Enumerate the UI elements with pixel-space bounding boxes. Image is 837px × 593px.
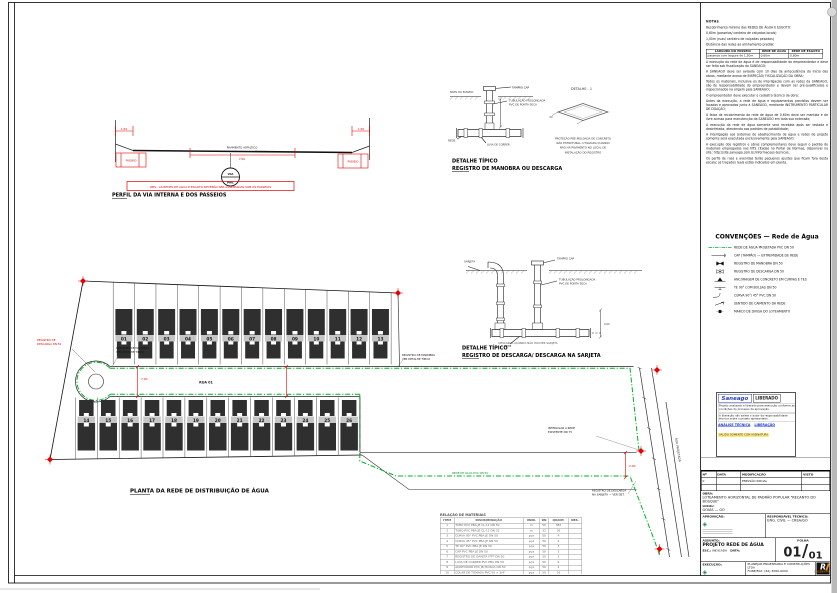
legend-panel: CONVENÇÕES — Rede de Água REDE DE ÁGUA P… <box>706 233 828 333</box>
valve-icon <box>708 261 733 267</box>
label: RUA 01 <box>199 381 213 385</box>
lot-number: 25 <box>324 418 330 424</box>
lot-house: 14 <box>78 400 96 451</box>
label: PROTEÇÃO PRÉ-MOLDADA DE CONCRETO <box>555 136 611 141</box>
sheet-number-cell: FOLHA 01/01 <box>776 538 830 561</box>
legend-label: MARCO DE DIVISA DO LOTEAMENTO <box>734 310 790 314</box>
note-paragraph: A SANEAGO deve ser avisada com 10 dias d… <box>706 70 828 78</box>
dimension-line <box>624 451 627 479</box>
label: TUBULAÇÃO PROLONGADA <box>558 277 595 282</box>
note-paragraph: Recobrimento mínimo das REDES DE ÁGUA E … <box>706 26 828 30</box>
note-paragraph: Antes da execução, a rede de água e equi… <box>706 100 828 112</box>
notes-paragraphs-2: A execução da rede de água é de responsa… <box>706 60 828 164</box>
title-block: NºDATAMODIFICAÇÃOVISTO0EMISSÃO INICIAL O… <box>701 470 830 576</box>
label: TUBULAÇÃO PROLONGADA <box>508 98 545 103</box>
note-paragraph: A execução dos registros e obras complem… <box>706 143 828 155</box>
legend-item: CURVA 90°/ 45° PVC DN 50 <box>706 292 828 300</box>
legend-item: TE 90° COM BOLSAS DN 50 <box>706 284 828 292</box>
logo-stripe <box>825 564 830 571</box>
lot-house: 08 <box>265 309 282 359</box>
dimension-line <box>285 365 288 398</box>
responsible-cell: RESPONSÁVEL TÉCNICO: ENG. CIVIL — CREA/G… <box>766 514 830 537</box>
lot-number: 15 <box>105 418 111 424</box>
lot-house: 13 <box>372 309 389 359</box>
note-paragraph: O empreendedor deve executar o cadastro … <box>706 94 828 98</box>
label: VER DETALHE TÍPICO <box>402 356 430 361</box>
legend-title: CONVENÇÕES — Rede de Água <box>706 233 828 240</box>
lot-house: 24 <box>297 400 315 451</box>
label: 0,60 <box>604 322 610 326</box>
lot-number: 03 <box>164 336 170 342</box>
lot-house: 19 <box>187 400 205 451</box>
note-paragraph: Os perfis de ruas e avenidas terão peque… <box>706 157 828 165</box>
label: PVC DE PONTA SECA <box>509 103 537 107</box>
ground-hatch <box>466 271 524 274</box>
label: PAVIMENTO ASFÁLTICO <box>227 145 258 150</box>
lot-house: 17 <box>143 400 161 451</box>
lot-house: 03 <box>158 309 175 359</box>
project-location: GOIÁS — GO <box>703 508 829 512</box>
survey-marker-icon <box>78 276 88 286</box>
lot-house: 25 <box>319 400 337 451</box>
company-logo: R ENGENHARIA <box>817 563 830 575</box>
label: PAV. <box>227 180 234 184</box>
note-paragraph: A execução da rede de água somente será … <box>706 123 828 131</box>
lot-number: 10 <box>313 336 319 342</box>
legend-item: REDE DE ÁGUA PROJETADA PVC DN 50 <box>706 244 828 252</box>
label: PERFIL DA VIA INTERNA E DOS PASSEIOS <box>112 193 227 199</box>
label: PASSEIO <box>348 160 359 164</box>
legend-label: TE 90° COM BOLSAS DN 50 <box>734 286 776 290</box>
lot-number: 20 <box>215 418 221 424</box>
label: NÍVEL DO PASSEIO <box>450 89 473 94</box>
label: REDE DE ÁGUA PVC DN 50 <box>452 470 488 475</box>
approval-cell: APROVAÇÃO: ◈ <box>701 514 766 537</box>
lot-house: 16 <box>121 400 138 451</box>
survey-marker-icon <box>393 288 403 298</box>
lot-house: 11 <box>329 309 346 359</box>
legend-label: SENTIDO DE CAIMENTO DA REDE <box>734 302 785 306</box>
water-line <box>77 362 110 400</box>
note-paragraph: A execução da rede de água é de responsa… <box>706 60 828 68</box>
legend-label: REGISTRO DE DESCARGA DN 50 <box>734 270 784 274</box>
company-logo-icon: ◈ <box>703 521 708 527</box>
survey-marker-icon <box>652 365 662 375</box>
lot-number: 22 <box>259 418 265 424</box>
note-paragraph: A faixa de recobrimento da rede de água … <box>706 114 828 122</box>
lot-house: 23 <box>275 400 293 451</box>
legend-item: SENTIDO DE CAIMENTO DA REDE <box>706 300 828 308</box>
label: REGISTRO DE <box>37 338 56 342</box>
legend-label: REGISTRO DE MANOBRA DN 50 <box>734 262 783 266</box>
legend-item: MARCO DE DIVISA DO LOTEAMENTO <box>706 308 828 316</box>
label: REDE <box>448 139 456 143</box>
lot-house: 26 <box>340 400 358 451</box>
label: 1,50 <box>358 127 364 131</box>
drawing-title: PROJETO REDE DE ÁGUA <box>703 543 774 548</box>
label: 2,00 <box>629 464 636 468</box>
table-row: passeios com largura de 1,50m0,60m0,80m <box>706 54 823 59</box>
label: VIA <box>228 172 234 176</box>
materials-title: RELAÇÃO DE MATERIAIS <box>440 513 582 517</box>
lot-house: 05 <box>201 309 218 359</box>
lots-top-row: 01020304050607080910111213 <box>113 282 391 364</box>
label: REGISTRO DE MANOBRA <box>402 353 435 357</box>
lots-bottom-row: 14151617181920212223242526 <box>75 398 360 460</box>
cap-icon <box>708 253 733 259</box>
lot-number: 19 <box>193 418 199 424</box>
label: PVC DE PONTA SECA <box>559 282 587 286</box>
legend-item: CAP (TAMPÃO) — EXTREMIDADE DE REDE <box>706 252 828 260</box>
discharge-icon <box>708 269 733 275</box>
lot-house: 07 <box>244 309 261 359</box>
lot-number: 02 <box>142 336 148 342</box>
ground-hatch <box>549 271 637 274</box>
lot-number: 16 <box>127 418 133 424</box>
water-line-icon <box>708 245 733 251</box>
public-road <box>640 368 690 557</box>
note-paragraph: 0,60m (passeios/ canteiro de calçadas lo… <box>706 32 828 36</box>
label: LUVA DE CORRER <box>487 143 510 147</box>
dimension-line <box>136 365 139 398</box>
stamp-text: A liberação não exime o autor da respons… <box>718 413 796 422</box>
notes-table: LARGURA DO PASSEIOREDE DE ÁGUAREDE DE ES… <box>706 49 823 59</box>
project-field: OBRA: LOTEAMENTO HORIZONTAL DE PADRÃO PO… <box>701 491 830 514</box>
road-ticks <box>638 367 671 550</box>
signature-lines <box>703 529 764 533</box>
ground-hatch <box>450 97 478 100</box>
lot-number: 23 <box>280 418 286 424</box>
label: PASSEIO <box>126 159 137 163</box>
notes-title: NOTAS <box>706 20 828 24</box>
lot-house: 20 <box>209 400 227 451</box>
lot-house: 04 <box>180 309 197 359</box>
lot-number: 09 <box>292 336 298 342</box>
survey-marker-icon <box>45 455 55 465</box>
tee-icon <box>708 285 733 291</box>
lot-number: 26 <box>346 418 352 424</box>
materials-table: ITEMDISCRIMINAÇÃOUNID.DNQUANT.OBS. 1TUBO… <box>440 518 582 575</box>
lot-house: 09 <box>286 309 303 359</box>
lot-house: 06 <box>222 309 239 359</box>
label: 1,50 <box>121 127 127 131</box>
label: REGISTRO DE DESCARGA <box>592 489 626 493</box>
lot-number: 14 <box>83 418 89 424</box>
stamp-link: ANÁLISE TÉCNICA <box>718 423 750 427</box>
responsible-name: ENG. CIVIL — CREA/GO <box>767 519 828 523</box>
stamp-validity-note: VÁLIDO SOMENTE COM ASSINATURA <box>718 433 769 437</box>
revision-row <box>701 484 830 491</box>
flow-icon <box>708 301 733 307</box>
label: SARJETA <box>464 260 475 264</box>
materials-row: 10COLAR DE TOMADA PVC 50 × 3/4"pça5026 <box>440 570 582 574</box>
anchor-icon <box>708 277 733 283</box>
lot-house: 22 <box>253 400 270 451</box>
subject-cell: ASSUNTO: PROJETO REDE DE ÁGUA ESC.: INDI… <box>701 538 776 561</box>
label: INSTALAÇÃO DO REGISTRO <box>565 149 602 154</box>
label: VER DETALHE TÍPICO <box>116 349 144 354</box>
revision-table: NºDATAMODIFICAÇÃOVISTO0EMISSÃO INICIAL <box>701 471 830 491</box>
lot-house: 12 <box>351 309 368 359</box>
lot-house: 10 <box>308 309 325 359</box>
lot-number: 17 <box>149 418 155 424</box>
label: TAMPÃO CAP <box>511 85 530 90</box>
label: 7,00 <box>239 157 245 161</box>
lot-number: 06 <box>228 336 234 342</box>
note-paragraph: A interligação aos sistemas de abastecim… <box>706 133 828 141</box>
lot-number: 18 <box>171 418 177 424</box>
legend-label: ANCORAGEM DE CONCRETO EM CURVAS E TES <box>734 278 807 282</box>
lot-number: 13 <box>377 336 383 342</box>
label: DETALHE TÍPICO <box>452 157 498 165</box>
legend-label: REDE DE ÁGUA PROJETADA PVC DN 50 <box>734 246 794 250</box>
company-logo-icon: ◈ <box>703 569 708 575</box>
label: DESCARGA DN 50 <box>37 342 61 346</box>
lot-number: 24 <box>302 418 308 424</box>
stamp-text: Projeto analisado e liberado para execuç… <box>718 404 796 413</box>
notes-paragraphs: Recobrimento mínimo das REDES DE ÁGUA E … <box>706 26 828 47</box>
note-paragraph: Todos os materiais, inclusive os de inte… <box>706 80 828 92</box>
lot-number: 21 <box>237 418 243 424</box>
stamp-status: LIBERADO <box>753 394 781 403</box>
label: EXISTENTE DN 75 <box>548 430 572 434</box>
label: 7,00 <box>141 377 148 381</box>
company-cell: PLANEJAR ENGENHARIA E CONSTRUÇÕES LTDA F… <box>746 562 816 576</box>
label: NA SARJETA — VER DET. <box>592 493 625 497</box>
label: NÃO ESTRUTURAL, UTILIZADA QUANDO <box>556 140 609 145</box>
notes-panel: NOTAS Recobrimento mínimo das REDES DE Á… <box>706 20 828 225</box>
scale-value: INDICADA <box>712 549 727 553</box>
note-paragraph: Distância das redes ao alinhamento predi… <box>706 43 828 47</box>
mark-icon <box>708 309 733 315</box>
label: DETALHE - 1 <box>571 87 592 91</box>
site-plan: 01020304050607080910111213 1415161718192… <box>45 276 689 557</box>
note-paragraph: 1,00m (ruas/ canteiro de calçadas pesada… <box>706 37 828 41</box>
lot-house: 15 <box>100 400 118 451</box>
lot-house: 18 <box>165 400 183 451</box>
legend-item: REGISTRO DE MANOBRA DN 50 <box>706 260 828 268</box>
label: REGISTRO DE MANOBRA OU DESCARGA <box>452 166 562 172</box>
label: OBS.: AS REDES DE ÁGUA E ESGOTO DEVERÃO … <box>150 184 271 189</box>
approval-stamp: Saneago LIBERADO Projeto analisado e lib… <box>716 392 796 457</box>
lot-number: 01 <box>121 336 127 342</box>
project-name: LOTEAMENTO HORIZONTAL DE PADRÃO POPULAR … <box>703 496 829 504</box>
label: PLANTA DA REDE DE DISTRIBUIÇÃO DE ÁGUA <box>130 488 270 495</box>
legend-label: CURVA 90°/ 45° PVC DN 50 <box>734 294 776 298</box>
label: RUA PROJETADA <box>674 438 682 464</box>
label: INTERLIGAR À REDE <box>548 425 575 430</box>
label: REGISTRO DE DESCARGA/ DESCARGA NA SARJET… <box>462 353 601 359</box>
label: REGISTRO DE MANOBRA <box>116 346 149 350</box>
stamp-link: LIBERAÇÃO <box>754 423 775 427</box>
legend-item: REGISTRO DE DESCARGA DN 50 <box>706 268 828 276</box>
curve-icon <box>708 293 733 299</box>
sheet-number: 01/01 <box>783 543 822 560</box>
lot-house: 21 <box>231 400 249 451</box>
legend-item: ANCORAGEM DE CONCRETO EM CURVAS E TES <box>706 276 828 284</box>
lot-number: 11 <box>335 336 341 342</box>
lot-number: 05 <box>206 336 212 342</box>
lot-number: 12 <box>356 336 362 342</box>
lot-number: 07 <box>249 336 255 342</box>
lot-number: 08 <box>271 336 277 342</box>
execution-cell: EXECUÇÃO: ◈ <box>701 562 746 576</box>
drawing-sheet: 01020304050607080910111213 1415161718192… <box>0 0 837 593</box>
utility-logo: Saneago <box>718 394 752 403</box>
label: TAMPÃO CAP <box>556 256 575 261</box>
company-phone: FONE/FAX: (62) 3000-0000 <box>748 570 814 573</box>
label: DESCARGA QUANDO NÃO HOUVER SARJETA <box>498 340 557 345</box>
legend-label: CAP (TAMPÃO) — EXTREMIDADE DE REDE <box>734 254 798 258</box>
survey-marker-icon <box>636 446 646 456</box>
lot-number: 04 <box>185 336 191 342</box>
label: NÃO HÁ PAVIMENTO NO LOCAL DE <box>560 145 607 150</box>
detail1-slab-isometric <box>552 104 608 125</box>
label: 60 <box>549 116 553 119</box>
materials-panel: RELAÇÃO DE MATERIAIS ITEMDISCRIMINAÇÃOUN… <box>440 513 582 574</box>
